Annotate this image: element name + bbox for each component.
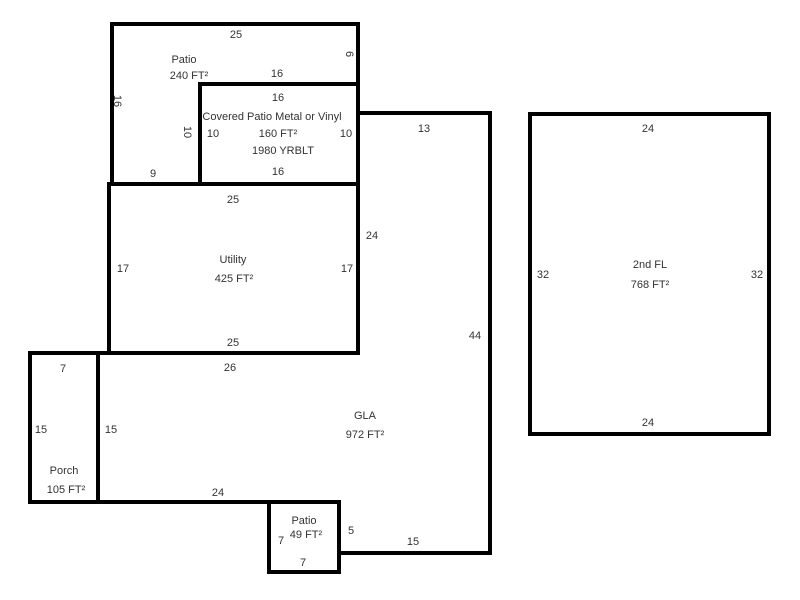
dim-2ndfl-left: 32 bbox=[537, 269, 549, 281]
dim-utility-top: 25 bbox=[227, 194, 239, 206]
dim-covered-patio-left: 10 bbox=[207, 128, 219, 140]
dim-gla-top: 13 bbox=[418, 123, 430, 135]
room-utility-area: 425 FT² bbox=[215, 273, 254, 285]
dim-gla-right: 44 bbox=[469, 330, 481, 342]
dim-gla-left-upper: 24 bbox=[366, 230, 378, 242]
floor-plan-page: 25Patio240 FT²16616916Covered Patio Meta… bbox=[0, 0, 800, 600]
room-2ndfl-area: 768 FT² bbox=[631, 279, 670, 291]
room-covered-patio-name: Covered Patio Metal or Vinyl bbox=[202, 111, 341, 123]
dim-porch-top: 7 bbox=[60, 363, 66, 375]
dim-covered-patio-top: 16 bbox=[272, 92, 284, 104]
dim-2ndfl-bottom: 24 bbox=[642, 417, 654, 429]
room-patio240-area: 240 FT² bbox=[170, 70, 209, 82]
room-covered-patio-area: 160 FT² bbox=[259, 128, 298, 140]
room-patio240-name: Patio bbox=[171, 54, 196, 66]
dim-covered-patio-bottom: 16 bbox=[272, 166, 284, 178]
dim-covered-patio-top-outer: 16 bbox=[271, 68, 283, 80]
room-2ndfl-name: 2nd FL bbox=[633, 259, 667, 271]
floor-plan-sketch: 25Patio240 FT²16616916Covered Patio Meta… bbox=[0, 0, 800, 600]
room-gla-area: 972 FT² bbox=[346, 429, 385, 441]
dim-patio240-left: 16 bbox=[111, 95, 123, 107]
dim-gla-bottom-left: 24 bbox=[212, 487, 224, 499]
dim-porch-left: 15 bbox=[35, 424, 47, 436]
dim-2ndfl-right: 32 bbox=[751, 269, 763, 281]
dim-patio49-left: 7 bbox=[278, 535, 284, 547]
dim-2ndfl-top: 24 bbox=[642, 123, 654, 135]
dim-patio49-bottom: 7 bbox=[300, 557, 306, 569]
room-second-floor-walls bbox=[530, 114, 769, 434]
dim-covered-patio-left-outer: 10 bbox=[181, 126, 193, 138]
dim-gla-left-lower: 15 bbox=[105, 424, 117, 436]
dim-utility-left: 17 bbox=[117, 263, 129, 275]
dim-gla-step: 5 bbox=[348, 525, 354, 537]
dim-covered-patio-right: 10 bbox=[340, 128, 352, 140]
dim-patio240-top: 25 bbox=[230, 29, 242, 41]
dim-patio240-right: 6 bbox=[343, 51, 355, 57]
dim-patio240-bottom: 9 bbox=[150, 168, 156, 180]
dim-utility-right: 17 bbox=[341, 263, 353, 275]
room-porch-name: Porch bbox=[50, 465, 79, 477]
dim-gla-top-left: 26 bbox=[224, 362, 236, 374]
room-utility-walls bbox=[109, 184, 358, 353]
room-porch-area: 105 FT² bbox=[47, 484, 86, 496]
room-patio49-name: Patio bbox=[291, 515, 316, 527]
room-covered-patio-yrblt: 1980 YRBLT bbox=[252, 145, 314, 157]
dim-gla-bottom-right: 15 bbox=[407, 536, 419, 548]
room-gla-name: GLA bbox=[354, 410, 377, 422]
room-utility-name: Utility bbox=[220, 254, 247, 266]
room-patio49-area: 49 FT² bbox=[290, 529, 323, 541]
dim-utility-bottom: 25 bbox=[227, 337, 239, 349]
